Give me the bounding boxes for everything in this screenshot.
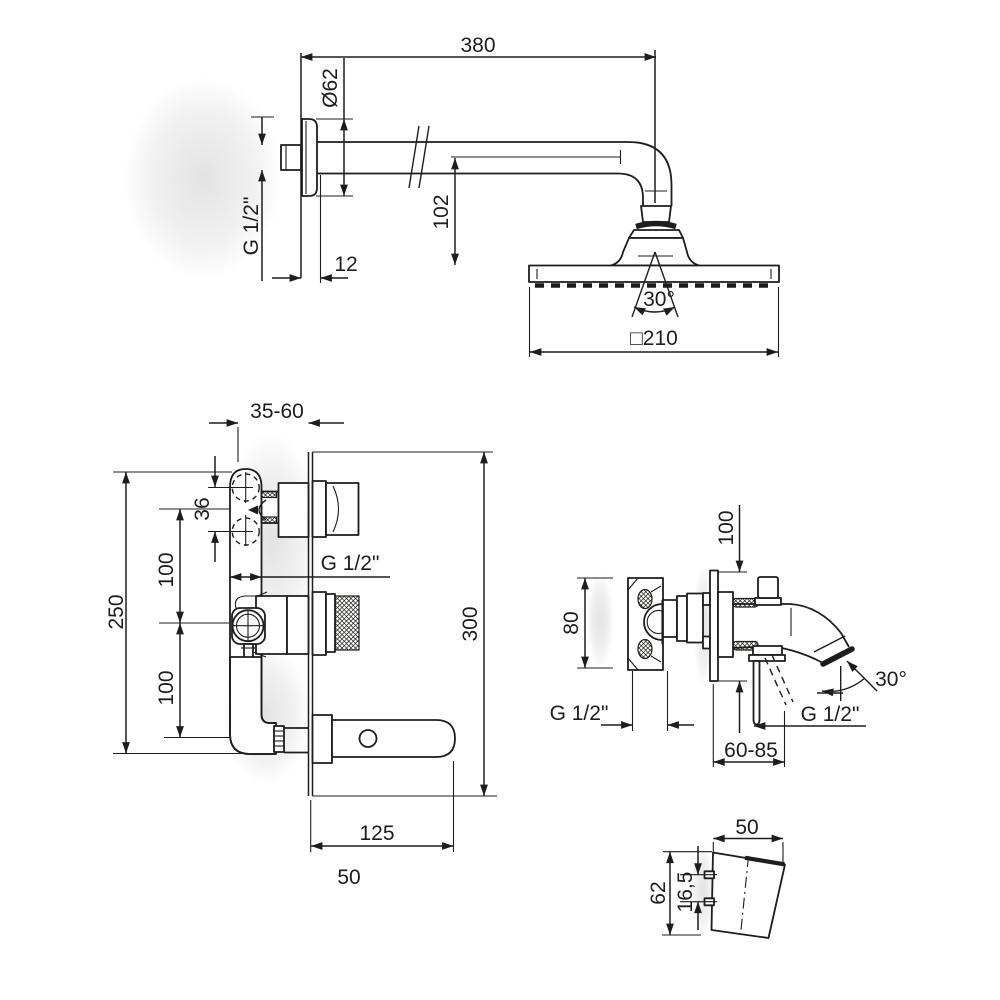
view-shower-arm-top: 380 Ø62 G 1/2" 12 — [240, 34, 779, 357]
thread-fitting — [281, 145, 301, 170]
dim-label-12: 12 — [334, 253, 357, 276]
rough-in-body — [628, 578, 663, 670]
spout-body-front — [332, 720, 455, 757]
technical-drawing-page: 380 Ø62 G 1/2" 12 — [0, 0, 1000, 1000]
dim-label-35-60: 35-60 — [250, 400, 304, 423]
diverter-escutcheon — [313, 481, 327, 537]
dim-flange-diameter: Ø62 — [316, 58, 353, 196]
head-mount — [611, 238, 699, 266]
spout-escutcheon-front — [313, 715, 333, 763]
drawing-canvas: 380 Ø62 G 1/2" 12 — [0, 0, 1000, 1000]
dim-label-30deg-spout: 30° — [875, 668, 907, 691]
wall-flange — [302, 119, 317, 196]
handle-body — [712, 853, 786, 939]
dim-thread-left: G 1/2" — [550, 671, 694, 731]
dim-label-102: 102 — [430, 194, 453, 229]
dim-label-100-spout: 100 — [715, 510, 738, 545]
dim-label-g12-left: G 1/2" — [550, 702, 609, 725]
dim-label-50: 50 — [735, 816, 758, 839]
pull-rod — [754, 661, 760, 725]
dim-label-250: 250 — [105, 594, 128, 629]
diverter-knob-top — [758, 577, 778, 598]
dim-label-100-upper: 100 — [155, 552, 178, 587]
dim-label-d62: Ø62 — [319, 68, 342, 108]
view-handle-detail: 50 62 16,5 — [647, 816, 785, 938]
dim-label-300: 300 — [459, 606, 482, 641]
dim-thread-right: G 1/2" — [754, 703, 866, 726]
diverter-knob-base — [755, 598, 781, 605]
dim-label-30deg-top: 30° — [643, 288, 675, 311]
dim-label-100-lower: 100 — [155, 670, 178, 705]
shower-head-plate — [529, 266, 779, 283]
dim-label-60-85: 60-85 — [724, 739, 778, 762]
dim-label-80: 80 — [560, 611, 583, 634]
dim-arm-length: 380 — [301, 34, 656, 203]
dim-overall-height: 250 — [105, 472, 242, 754]
mixer-knob-knurled — [335, 596, 359, 650]
diverter-knob — [326, 483, 359, 535]
diverter-trim — [279, 483, 309, 537]
shower-arm — [317, 126, 672, 206]
dim-label-g12-right: G 1/2" — [801, 703, 860, 726]
dim-label-62: 62 — [647, 881, 670, 904]
dim-label-16-5: 16,5 — [674, 872, 697, 913]
mixer-escutcheon — [313, 592, 327, 655]
dim-label-380: 380 — [460, 34, 495, 57]
wall-spout — [313, 715, 456, 763]
dim-label-50-faded: 50 — [337, 866, 360, 889]
dim-label-125: 125 — [359, 822, 394, 845]
dim-stream-angle: 30° — [817, 661, 907, 701]
dim-label-210: □210 — [630, 327, 678, 350]
break-mark — [419, 126, 429, 188]
dim-label-36: 36 — [191, 497, 214, 520]
wall-connection — [663, 571, 718, 682]
spout-escutcheon-plate — [710, 571, 718, 682]
spout-body-side — [718, 577, 852, 664]
dim-label-g12-mixer: G 1/2" — [321, 552, 380, 575]
diverter-pull — [749, 646, 793, 725]
ball-joint — [629, 206, 683, 238]
break-mark — [409, 126, 419, 188]
dim-spout-projection: 125 — [311, 761, 454, 852]
mixer-trim — [287, 596, 309, 654]
dim-label-g12-top: G 1/2" — [240, 197, 263, 256]
dim-plate-height: 300 — [459, 452, 484, 796]
mixer-knob-neck — [326, 594, 335, 652]
